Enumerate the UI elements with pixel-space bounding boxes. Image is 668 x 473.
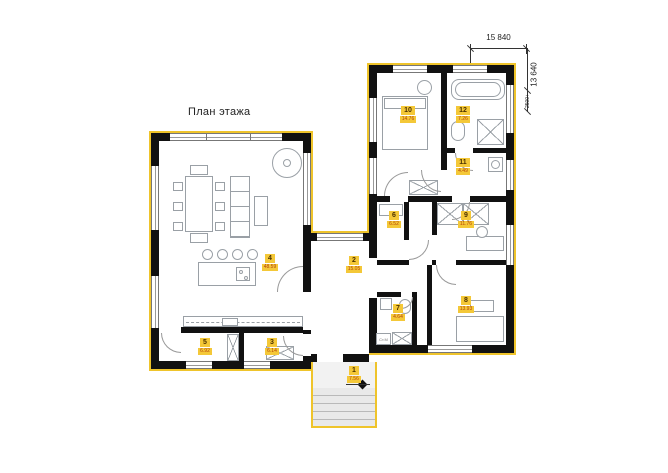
- room-area: 14.76: [400, 116, 417, 123]
- room-label-7: 7 4.64: [385, 304, 411, 321]
- stairs: [313, 388, 375, 426]
- interior-wall: [377, 260, 409, 265]
- room-label-4: 4 48.59: [257, 254, 283, 271]
- room-area: 13.93: [458, 306, 475, 313]
- room-label-12: 12 7.26: [450, 106, 476, 123]
- window: [303, 153, 311, 225]
- washing-machine-drum: [491, 160, 500, 169]
- room-number: 12: [456, 106, 470, 115]
- room-number: 2: [349, 256, 359, 265]
- chair: [215, 182, 225, 191]
- room-area: 6.14: [265, 348, 279, 355]
- window: [369, 158, 377, 194]
- window: [506, 160, 514, 190]
- room-area: 48.59: [262, 264, 279, 271]
- hall-door-opening: [317, 354, 343, 362]
- room-area: 6.52: [387, 221, 401, 228]
- room-area: 7.56: [347, 376, 361, 383]
- washing-machine-label: Ст.М: [376, 333, 391, 345]
- chair: [215, 222, 225, 231]
- interior-wall: [412, 292, 417, 345]
- room-label-8: 8 13.93: [453, 296, 479, 313]
- bathtub-basin: [455, 82, 501, 97]
- room-label-9: 9 11.76: [453, 211, 479, 228]
- interior-wall: [377, 292, 401, 297]
- room-label-6: 6 6.52: [381, 211, 407, 228]
- interior-wall: [408, 196, 452, 202]
- window: [151, 276, 159, 328]
- room-label-3: 3 6.14: [259, 338, 285, 355]
- interior-wall: [470, 196, 506, 202]
- window: [506, 85, 514, 133]
- room-area: 15.05: [346, 266, 363, 273]
- shower: [477, 119, 504, 145]
- window: [506, 225, 514, 265]
- window: [170, 133, 282, 141]
- window: [428, 345, 472, 353]
- interior-wall: [427, 265, 432, 345]
- kitchen-sink: [222, 318, 238, 326]
- stove: [236, 267, 250, 281]
- window-mullion: [250, 133, 251, 141]
- dim-width-line: [470, 48, 527, 49]
- door-opening-livingroom-hall: [303, 292, 311, 330]
- window: [244, 361, 270, 369]
- passage-hall-rightwing: [369, 258, 377, 298]
- chair: [215, 202, 225, 211]
- window: [186, 361, 212, 369]
- room-number: 4: [265, 254, 275, 263]
- bar-stool: [202, 249, 213, 260]
- bar-stool: [232, 249, 243, 260]
- room-number: 5: [200, 338, 210, 347]
- room-number: 9: [461, 211, 471, 220]
- desk: [466, 236, 504, 251]
- kitchen-counter: [183, 316, 303, 327]
- armchair: [417, 80, 432, 95]
- plan-title: План этажа: [188, 106, 250, 118]
- dim-width-label: 15 840: [470, 33, 527, 42]
- chair: [173, 182, 183, 191]
- room-area: 4.64: [391, 314, 405, 321]
- room-number: 6: [389, 211, 399, 220]
- wardrobe: [227, 334, 239, 361]
- chair: [173, 202, 183, 211]
- room-number: 1: [349, 366, 359, 375]
- room-label-2: 2 15.05: [341, 256, 367, 273]
- room-label-10: 10 14.76: [395, 106, 421, 123]
- window: [393, 65, 427, 73]
- floor-plan-canvas: Ст.М 1 7.56 2 15.05 3 6.14 4 48.59 5 6.9…: [0, 0, 668, 473]
- room-number: 8: [461, 296, 471, 305]
- interior-wall: [441, 73, 447, 170]
- interior-wall: [456, 260, 506, 265]
- chair: [190, 233, 208, 243]
- room-label-1: 1 7.56: [341, 366, 367, 383]
- room-area: 4.49: [456, 168, 470, 175]
- dining-table: [185, 176, 213, 232]
- chair: [190, 165, 208, 175]
- room-number: 3: [267, 338, 277, 347]
- interior-wall: [239, 333, 244, 361]
- interior-wall: [377, 196, 390, 202]
- room-number: 11: [456, 158, 469, 167]
- shelf-unit: [230, 176, 250, 238]
- room-area: 11.76: [458, 221, 474, 228]
- room-area: 6.92: [198, 348, 212, 355]
- interior-wall: [473, 148, 506, 153]
- interior-wall: [447, 148, 455, 153]
- sink: [451, 121, 465, 141]
- room-area: 7.26: [456, 116, 470, 123]
- room-label-11: 11 4.49: [450, 158, 476, 175]
- room-number: 7: [393, 304, 403, 313]
- window: [453, 65, 487, 73]
- fireplace-flue: [283, 159, 291, 167]
- stove-burner: [244, 276, 248, 280]
- stove-burner: [239, 270, 243, 274]
- window: [151, 166, 159, 230]
- door-opening-hall-room3: [303, 334, 311, 356]
- chair: [173, 222, 183, 231]
- shower: [392, 332, 412, 345]
- bed-room8: [456, 316, 504, 342]
- room-number: 10: [401, 106, 415, 115]
- hall-window: [317, 233, 363, 241]
- window: [369, 98, 377, 142]
- window-mullion: [206, 133, 207, 141]
- sofa: [254, 196, 268, 226]
- entrance-marker-line: [346, 384, 370, 385]
- bar-stool: [217, 249, 228, 260]
- room-label-5: 5 6.92: [192, 338, 218, 355]
